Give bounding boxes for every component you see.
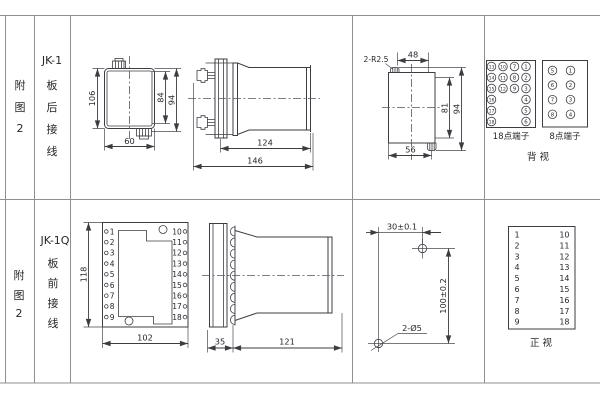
jk1-mounting-screw-top	[197, 69, 215, 83]
table-number-left: 2	[515, 241, 520, 250]
terminal-number-right: 12	[172, 249, 182, 258]
wiring-label-char: 接	[47, 123, 58, 136]
terminal-pin-number: 11	[500, 75, 506, 81]
terminal-pin-number: 15	[489, 86, 495, 92]
terminal-pin-number: 6	[551, 83, 555, 89]
terminal-number-right: 15	[172, 281, 182, 290]
terminal-pin-number: 17	[489, 108, 495, 114]
terminal-number-right: 14	[172, 270, 182, 279]
table-number-right: 10	[559, 231, 569, 240]
wiring-label-char: 板	[48, 256, 59, 270]
terminal-pin-number: 14	[489, 75, 495, 81]
terminal-number-right: 13	[172, 259, 182, 268]
terminal-dot	[105, 251, 109, 255]
terminal-bump	[230, 227, 235, 236]
terminal-pin-number: 12	[500, 86, 506, 92]
dim-102: 102	[137, 333, 153, 343]
terminal-dot	[105, 315, 109, 319]
terminal-bump	[230, 293, 235, 302]
terminal-bump	[230, 260, 235, 269]
terminal-number-right: 16	[172, 292, 182, 301]
model-label-jk1: JK-1	[41, 54, 62, 67]
label-8pt: 8点端子	[549, 130, 581, 142]
terminal-dot	[105, 262, 109, 266]
row-header-labels: JK-1 JK-1Q 附图2板后接线附图2板前接线	[14, 54, 70, 330]
dim-100: 100±0.2	[438, 278, 448, 314]
front-view-label: 正 视	[530, 337, 553, 349]
dim-56: 56	[405, 145, 415, 155]
terminal-pin-number: 16	[489, 97, 495, 103]
terminal-number-right: 10	[172, 227, 182, 236]
terminal-number-left: 1	[110, 227, 115, 236]
drill-template: 30±0.1 100±0.2 2-Ø5	[366, 222, 455, 353]
terminal-dot	[105, 283, 109, 287]
fig-label-char: 附	[15, 78, 26, 92]
terminal-number-right: 18	[172, 313, 182, 322]
jk1-mounting-screw-bottom	[197, 116, 215, 130]
terminal-pin-number: 10	[500, 64, 506, 70]
terminal-bump	[230, 315, 235, 324]
terminal-pin-number: 7	[513, 64, 516, 70]
terminal-dot	[105, 273, 109, 277]
terminal-pin-number: 7	[551, 98, 554, 104]
dim-94-rear: 94	[452, 104, 462, 114]
terminal-pin-number: 1	[569, 69, 572, 75]
table-number-left: 4	[515, 263, 520, 272]
back-view-label: 背 视	[527, 151, 550, 163]
wiring-label-char: 接	[48, 297, 59, 310]
terminal-dot	[105, 305, 109, 309]
terminal-pin-number: 1	[524, 64, 527, 70]
terminal-pin-number: 13	[489, 64, 495, 70]
terminal-bump	[230, 238, 235, 247]
terminal-number-left: 3	[110, 249, 115, 258]
dim-94: 94	[167, 95, 177, 105]
terminal-pin-number: 18	[489, 119, 495, 125]
terminal-number-left: 4	[110, 259, 115, 268]
table-number-right: 17	[559, 307, 569, 316]
radius-callout: 2-R2.5	[364, 55, 389, 64]
jk1q-terminal-rows: 123456789101112131415161718	[105, 227, 187, 322]
dim-121: 121	[279, 337, 295, 347]
wiring-label-char: 后	[47, 101, 58, 114]
terminal-8pt-circles: 56781234	[548, 66, 575, 118]
terminal-pin-number: 4	[569, 112, 573, 118]
terminal-bump	[230, 249, 235, 258]
table-number-right: 16	[559, 296, 569, 305]
terminal-dot	[183, 230, 187, 234]
mounting-hole-top	[159, 226, 167, 234]
wiring-label-char: 线	[48, 316, 59, 330]
mounting-hole-bottom	[125, 317, 133, 325]
table-number-left: 9	[515, 318, 520, 327]
dim-84: 84	[156, 92, 166, 102]
table-grid	[0, 16, 600, 384]
terminal-dot	[183, 294, 187, 298]
table-number-left: 7	[515, 296, 520, 305]
terminal-dot	[183, 315, 187, 319]
terminal-18pt-circles: 131415161718101112789123456	[487, 62, 530, 126]
table-number-right: 15	[559, 285, 569, 294]
terminal-number-right: 17	[172, 302, 182, 311]
dim-118: 118	[79, 267, 89, 283]
terminal-dot	[183, 273, 187, 277]
fig-label-char: 2	[17, 122, 24, 135]
table-number-left: 5	[515, 274, 520, 283]
dim-48: 48	[408, 50, 418, 60]
jk1-front-view: 106 84 94 60	[87, 56, 181, 151]
dim-30: 30±0.1	[387, 222, 417, 232]
terminal-bump	[230, 282, 235, 291]
terminal-dot	[105, 294, 109, 298]
terminal-dot	[105, 230, 109, 234]
table-number-left: 8	[515, 307, 520, 316]
jk1-rear-view: 2-R2.5 48 81 94 56	[364, 50, 466, 161]
model-label-jk1q: JK-1Q	[40, 234, 70, 247]
technical-drawing-canvas: JK-1 JK-1Q 附图2板后接线附图2板前接线 106 84 94 60	[0, 0, 600, 400]
fig-label-char: 附	[14, 268, 25, 282]
terminal-pin-number: 6	[524, 119, 528, 125]
fig-label-char: 图	[15, 101, 26, 114]
table-number-right: 12	[559, 252, 569, 261]
terminal-number-left: 8	[110, 302, 115, 311]
table-number-right: 11	[559, 241, 569, 250]
manual-figure-page: JK-1 JK-1Q 附图2板后接线附图2板前接线 106 84 94 60	[0, 0, 600, 400]
terminal-bump	[230, 304, 235, 313]
table-number-right: 18	[559, 318, 569, 327]
table-number-left: 1	[515, 231, 520, 240]
terminal-pin-number: 8	[551, 112, 555, 118]
fig-label-char: 图	[14, 289, 25, 302]
jk1-bottom-terminal-tab	[137, 129, 152, 140]
dim-60: 60	[124, 136, 134, 146]
wiring-label-char: 线	[47, 144, 58, 158]
terminal-number-left: 6	[110, 281, 115, 290]
terminal-number-left: 5	[110, 270, 115, 279]
terminal-pin-number: 2	[524, 75, 527, 81]
terminal-number-left: 9	[110, 313, 115, 322]
terminal-number-left: 7	[110, 292, 115, 301]
dim-124: 124	[257, 138, 273, 148]
wiring-label-char: 前	[48, 276, 59, 290]
terminal-dot	[183, 251, 187, 255]
terminal-pin-number: 2	[569, 83, 572, 89]
fig-label-char: 2	[16, 307, 23, 320]
dim-81: 81	[440, 103, 450, 113]
terminal-dot	[183, 240, 187, 244]
jk1-side-view: 124 146	[188, 59, 320, 171]
wiring-label-char: 板	[47, 78, 58, 92]
dim-106: 106	[87, 91, 97, 107]
table-number-left: 3	[515, 252, 520, 261]
terminal-pin-number: 5	[524, 108, 527, 114]
terminal-number-right: 11	[172, 238, 182, 247]
terminal-number-left: 2	[110, 238, 115, 247]
label-18pt: 18点端子	[493, 130, 530, 142]
terminal-pin-number: 3	[569, 98, 572, 104]
terminal-dot	[105, 240, 109, 244]
terminal-pin-number: 3	[524, 86, 527, 92]
terminal-dot	[183, 262, 187, 266]
table-number-right: 14	[559, 274, 569, 283]
dim-146: 146	[247, 156, 263, 166]
dim-35: 35	[215, 337, 225, 347]
terminal-pin-number: 5	[551, 69, 554, 75]
table-number-left: 6	[515, 285, 520, 294]
jk1-top-terminal-tab	[113, 59, 126, 69]
terminal-pin-number: 9	[513, 86, 517, 92]
terminal-dot	[183, 305, 187, 309]
table-number-right: 13	[559, 263, 569, 272]
terminal-pin-number: 8	[513, 75, 517, 81]
terminal-dot	[183, 283, 187, 287]
terminal-pin-number: 4	[524, 97, 528, 103]
hole-diameter-label: 2-Ø5	[402, 323, 422, 333]
terminal-table-rows: 123456789101112131415161718	[515, 231, 570, 327]
jk1q-side-view: 35 121	[202, 224, 344, 353]
